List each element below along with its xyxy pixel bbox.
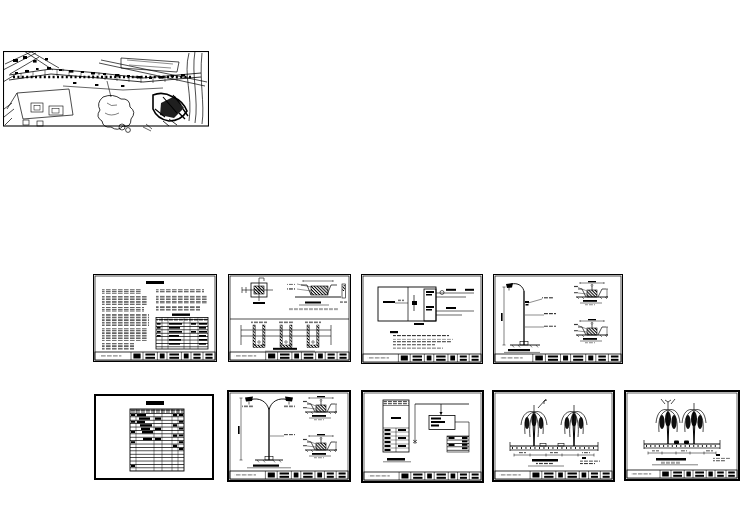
sheet-foundation-details-art [229,275,350,361]
title-block [495,471,612,479]
foundation-detail-bottom [303,434,337,458]
section-notes [713,454,730,461]
foundation-section-view [287,280,347,310]
title-block [95,352,215,360]
sheet-system-schematic [361,274,483,364]
sheet-schedule-table-art [96,396,212,478]
title-block [363,354,481,362]
title-block [495,354,621,362]
tree-lamp-left [656,399,680,444]
section-caption [652,458,698,465]
foundation-detail-top [303,396,337,420]
sheet-design-notes-art [94,275,216,361]
sheet-cross-section-wide [492,390,615,482]
distribution-box-diagram [378,287,474,325]
tree-lamp-right [682,403,706,444]
sheet-single-arm-lamp [493,274,623,364]
wiring-circuit [413,404,469,452]
foundation-plan-view [242,278,273,304]
material-table [156,314,208,350]
sheet-foundation-details [228,274,351,362]
title-block [230,352,349,360]
title-block [230,471,348,479]
section-caption [528,459,564,466]
sheet-double-arm-lamp-art [229,392,349,480]
site-plan-art [3,51,209,139]
sheet-cross-section-wide-art [494,392,613,480]
sheet-title-mark [146,281,164,284]
sheet-wiring-diagram [361,390,484,483]
schedule-table [130,409,184,471]
sheet-wiring-diagram-art [363,392,482,481]
diagram-caption [383,458,411,462]
sheet-schedule-table [94,394,214,480]
lamp-elevation [501,283,556,352]
section-notes [580,457,600,464]
sheet-cross-section-narrow [624,390,740,481]
tree-lamp-left [521,399,547,446]
notes-left-column [102,289,149,350]
title-block [364,472,481,480]
cable-trench-sections [241,322,331,352]
notes-right-column [156,289,207,311]
schematic-notes [390,331,453,349]
foundation-detail-bottom [574,319,608,343]
cad-drawing-set [0,0,749,530]
title-block [627,470,737,478]
site-plan [3,51,209,139]
foundation-detail-top [574,281,608,305]
panel-schedule-column [383,400,409,452]
sheet-double-arm-lamp [227,390,351,482]
road-section [510,442,598,457]
road-section [644,440,720,455]
sheet-single-arm-lamp-art [494,275,622,363]
lamp-elevation [238,397,295,468]
sheet-system-schematic-art [362,275,482,363]
table-title-mark [146,401,164,405]
sheet-cross-section-narrow-art [626,392,738,479]
sheet-design-notes [93,274,217,362]
tree-lamp-right [561,405,587,446]
